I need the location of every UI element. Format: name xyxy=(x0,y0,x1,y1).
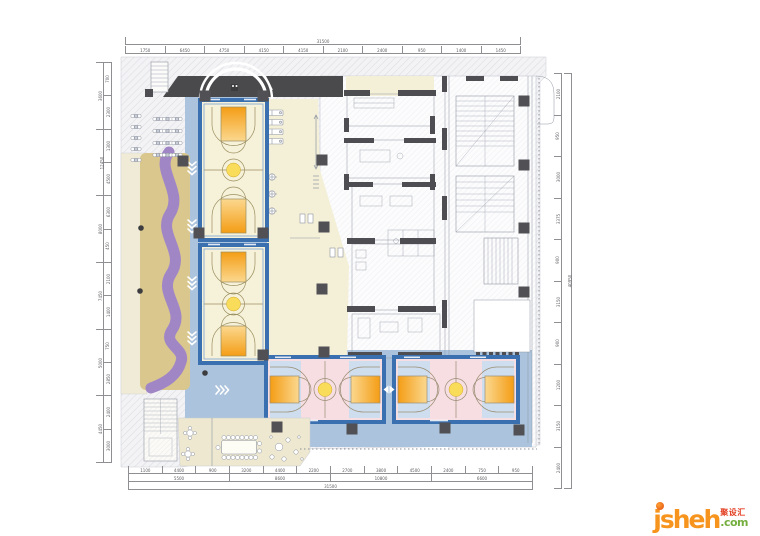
column-dot xyxy=(137,288,143,294)
court-key xyxy=(221,252,246,282)
center-ball xyxy=(227,163,241,177)
court-key xyxy=(270,376,299,403)
court-key xyxy=(485,376,514,403)
dimension-right-inner: 2100950300033759003150900120031502400 xyxy=(554,73,562,489)
void-shaft xyxy=(474,300,530,352)
center-ball xyxy=(227,297,241,311)
conference-table xyxy=(216,435,262,459)
stair-block-bottom-left xyxy=(144,399,177,461)
dimension-left-outer: 3600124508000745050004450 xyxy=(96,62,104,463)
court-key xyxy=(351,376,380,403)
court-key xyxy=(398,376,427,403)
logo-tld-text: .com xyxy=(720,517,748,528)
entrance-gate-icon xyxy=(231,84,238,91)
logo-brand-text: jsheh xyxy=(653,510,719,530)
court-key xyxy=(221,107,246,141)
jsheh-watermark: jsheh 聚设汇 .com xyxy=(653,509,748,529)
floor-plan-drawing xyxy=(0,0,760,536)
column-dot xyxy=(202,370,208,376)
dimension-bottom-inner: 1100440090032004400220027003800450024007… xyxy=(128,466,533,474)
basketball-court-horizontal-1 xyxy=(266,357,384,422)
dimension-bottom-mid: 55008600108006600 xyxy=(128,474,533,482)
court-key xyxy=(221,326,246,356)
basketball-court-horizontal-2 xyxy=(394,357,518,422)
center-ball xyxy=(449,383,463,397)
court-key xyxy=(221,199,246,233)
dimension-right-outer: 40950 xyxy=(564,73,572,489)
floor-plan-sheet: 31500 1750645047504150415021002400950140… xyxy=(0,0,760,536)
basketball-court-vertical-2 xyxy=(200,245,267,363)
column-dot xyxy=(138,225,144,231)
dimension-bottom-outer: 31500 xyxy=(128,482,533,490)
dimension-top-inner: 175064504750415041502100240095014001450 xyxy=(125,46,521,54)
center-ball xyxy=(318,383,332,397)
dimension-top-outer: 31500 xyxy=(125,37,521,45)
basketball-court-vertical-1 xyxy=(200,100,267,240)
dimension-left-inner: 7002300130045006300450210014007502850240… xyxy=(104,62,112,463)
cafe-area xyxy=(178,418,310,466)
